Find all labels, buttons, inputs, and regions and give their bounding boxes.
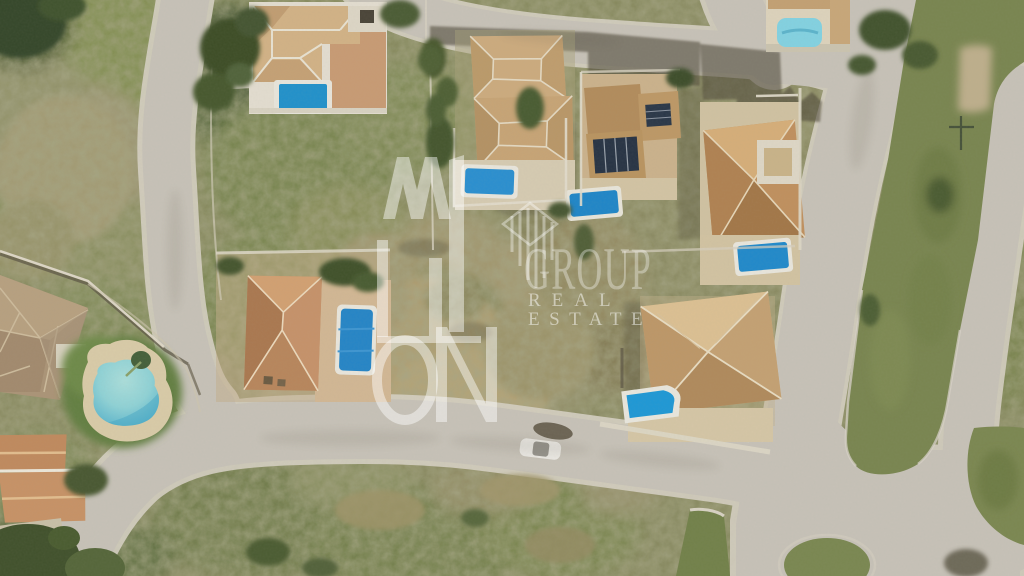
- svg-text:REAL: REAL: [528, 290, 622, 311]
- svg-text:ESTATE: ESTATE: [528, 309, 652, 330]
